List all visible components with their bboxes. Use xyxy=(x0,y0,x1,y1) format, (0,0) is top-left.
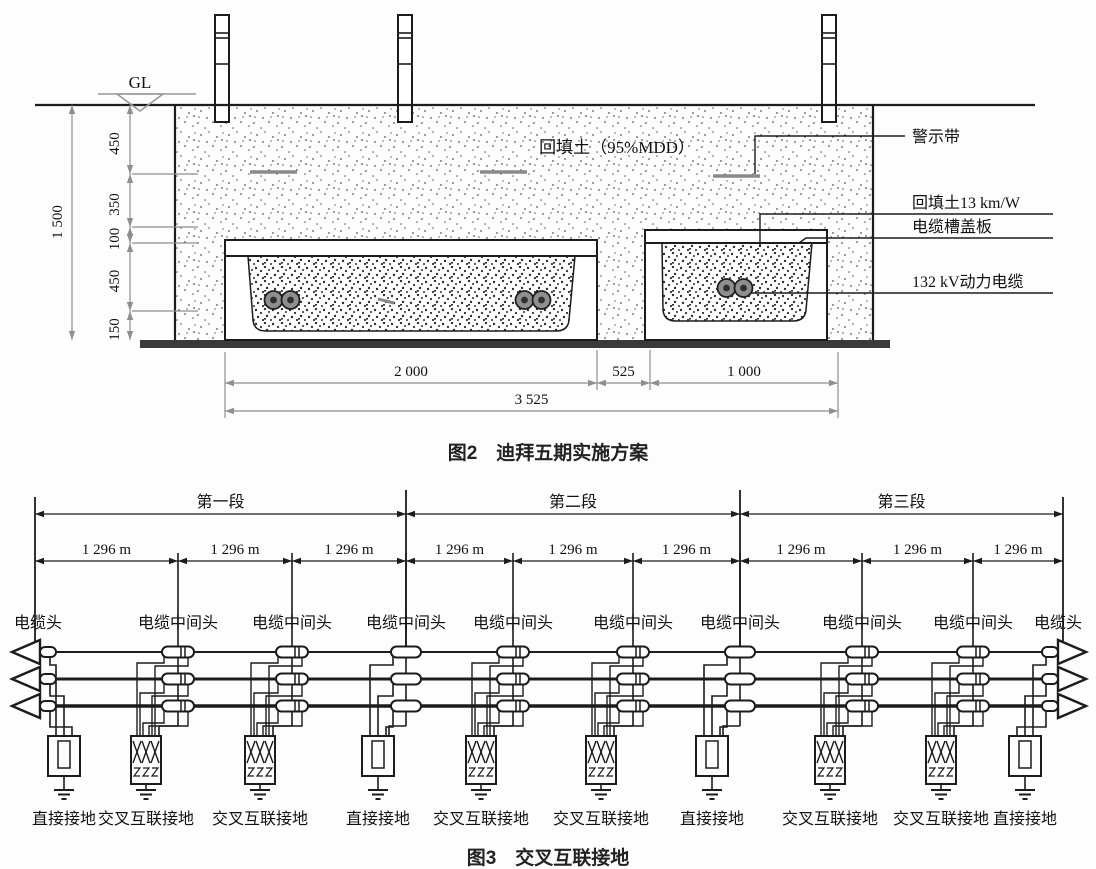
direct-ground-box-inner xyxy=(706,741,718,768)
cable-termination-arrow xyxy=(1058,694,1086,718)
dim-arrow xyxy=(283,558,292,564)
dim-arrow xyxy=(650,380,659,386)
cable-termination-arrow xyxy=(12,640,40,664)
gl-label: GL xyxy=(129,73,152,92)
callout-label: 132 kV动力电缆 xyxy=(912,273,1024,291)
dim-arrow xyxy=(829,380,838,386)
dim-arrow xyxy=(397,558,406,564)
link-zigzag xyxy=(589,768,595,776)
dim-arrow xyxy=(973,558,982,564)
dim-text: 1 296 m xyxy=(776,542,826,558)
dim-text: 1 500 xyxy=(50,205,66,239)
insulated-cable-joint xyxy=(276,647,308,658)
dim-text: 3 525 xyxy=(515,392,549,408)
link-zigzag xyxy=(929,768,935,776)
cable-core xyxy=(740,285,747,292)
cable-termination-arrow xyxy=(12,694,40,718)
node-label: 电缆中间头 xyxy=(473,614,553,632)
insulated-cable-joint xyxy=(846,647,878,658)
cable-joint xyxy=(391,674,421,685)
insulated-cable-joint xyxy=(276,674,308,685)
figure3-cross-bonding: 第一段第二段第三段1 296 m1 296 m1 296 m1 296 m1 2… xyxy=(12,490,1086,828)
insulated-cable-joint xyxy=(497,701,529,712)
dim-text: 2 000 xyxy=(394,364,428,380)
cable-core xyxy=(538,297,545,304)
dim-arrow xyxy=(641,380,650,386)
callout-label: 回填土13 km/W xyxy=(912,194,1021,212)
dim-text: 450 xyxy=(107,270,123,293)
dim-arrow xyxy=(406,511,415,517)
cross-bond-box xyxy=(466,736,496,784)
link-zigzag xyxy=(143,768,149,776)
joint-stem xyxy=(494,726,513,736)
link-zigzag xyxy=(836,768,842,776)
ground-type-label: 直接接地 xyxy=(346,810,410,828)
cable-core xyxy=(521,297,528,304)
foundation-strip xyxy=(140,340,890,348)
node-label: 电缆中间头 xyxy=(138,614,218,632)
cable-core xyxy=(287,297,294,304)
ground-type-label: 交叉互联接地 xyxy=(98,810,194,828)
ground-type-label: 直接接地 xyxy=(32,810,96,828)
dim-text: 1 296 m xyxy=(324,542,374,558)
insulated-cable-joint xyxy=(162,647,194,658)
dim-arrow xyxy=(127,331,133,340)
dim-arrow xyxy=(862,558,871,564)
section-label: 第一段 xyxy=(196,493,244,511)
node-label: 电缆头 xyxy=(1034,614,1082,632)
dim-arrow xyxy=(69,105,75,114)
direct-ground-box-inner xyxy=(58,741,70,768)
insulated-cable-joint xyxy=(957,701,989,712)
ground-type-label: 交叉互联接地 xyxy=(782,810,878,828)
dim-arrow xyxy=(513,558,522,564)
link-zigzag xyxy=(152,768,158,776)
dim-arrow xyxy=(127,218,133,227)
bond-wire xyxy=(143,711,164,736)
cable-joint xyxy=(725,647,755,658)
dim-arrow xyxy=(127,174,133,183)
joint-stem xyxy=(273,726,292,736)
link-zigzag xyxy=(487,768,493,776)
direct-ground-box xyxy=(696,736,728,776)
node-label: 电缆中间头 xyxy=(700,614,780,632)
termination-stub xyxy=(1042,701,1058,711)
dim-text: 1 296 m xyxy=(548,542,598,558)
ground-type-label: 交叉互联接地 xyxy=(212,810,308,828)
page: GL回填土（95%MDD）1 5004503501004501502 00052… xyxy=(0,0,1096,869)
ground-type-label: 交叉互联接地 xyxy=(433,810,529,828)
section-label: 第二段 xyxy=(549,493,597,511)
dim-arrow xyxy=(225,380,234,386)
dim-arrow xyxy=(624,558,633,564)
direct-ground-box-inner xyxy=(372,741,384,768)
termination-stub xyxy=(40,701,56,711)
joint-stem xyxy=(954,726,973,736)
dim-arrow xyxy=(35,558,44,564)
dim-arrow xyxy=(597,380,606,386)
insulated-cable-joint xyxy=(162,701,194,712)
termination-stub xyxy=(40,674,56,684)
joint-stem xyxy=(159,726,178,736)
direct-ground-box xyxy=(48,736,80,776)
callout-label: 警示带 xyxy=(912,128,960,146)
insulated-cable-joint xyxy=(846,701,878,712)
dim-arrow xyxy=(397,511,406,517)
dim-arrow xyxy=(35,511,44,517)
cable-joint xyxy=(725,674,755,685)
dim-arrow xyxy=(633,558,642,564)
node-label: 电缆中间头 xyxy=(933,614,1013,632)
ground-type-label: 交叉互联接地 xyxy=(893,810,989,828)
insulated-cable-joint xyxy=(617,647,649,658)
link-zigzag xyxy=(607,768,613,776)
dim-arrow xyxy=(829,408,838,414)
insulated-cable-joint xyxy=(617,701,649,712)
dim-arrow xyxy=(127,302,133,311)
termination-stub xyxy=(1042,647,1058,657)
bond-wire xyxy=(598,711,619,736)
joint-stem xyxy=(614,726,633,736)
ground-type-label: 直接接地 xyxy=(993,810,1057,828)
direct-ground-box-inner xyxy=(1019,741,1031,768)
dim-text: 1 296 m xyxy=(993,542,1043,558)
cable-termination-arrow xyxy=(1058,667,1086,691)
soil-label: 回填土（95%MDD） xyxy=(539,138,695,157)
node-label: 电缆中间头 xyxy=(252,614,332,632)
cross-bond-box xyxy=(131,736,161,784)
dim-text: 525 xyxy=(612,364,635,380)
bond-wire xyxy=(50,711,72,736)
bond-wire xyxy=(938,711,959,736)
dim-arrow xyxy=(169,558,178,564)
dim-arrow xyxy=(127,311,133,320)
technical-diagram: GL回填土（95%MDD）1 5004503501004501502 00052… xyxy=(0,0,1096,869)
cross-bond-box xyxy=(586,736,616,784)
dim-text: 150 xyxy=(107,318,123,341)
termination-stub xyxy=(40,647,56,657)
cable-termination-arrow xyxy=(12,667,40,691)
bond-wire xyxy=(257,711,278,736)
insulated-cable-joint xyxy=(957,674,989,685)
insulated-cable-joint xyxy=(957,647,989,658)
dim-arrow xyxy=(1054,558,1063,564)
cable-joint xyxy=(391,647,421,658)
bond-wire xyxy=(1017,711,1046,736)
insulated-cable-joint xyxy=(497,647,529,658)
link-zigzag xyxy=(134,768,140,776)
dim-arrow xyxy=(127,105,133,114)
node-label: 电缆头 xyxy=(14,614,62,632)
insulated-cable-joint xyxy=(276,701,308,712)
dim-arrow xyxy=(964,558,973,564)
direct-ground-box xyxy=(362,736,394,776)
figure2-caption: 图2 迪拜五期实施方案 xyxy=(0,438,1096,465)
bond-wire xyxy=(478,711,499,736)
cross-bond-box xyxy=(815,736,845,784)
joint-stem xyxy=(843,726,862,736)
link-zigzag xyxy=(248,768,254,776)
dim-text: 1 296 m xyxy=(435,542,485,558)
link-zigzag xyxy=(266,768,272,776)
node-label: 电缆中间头 xyxy=(366,614,446,632)
dim-arrow xyxy=(731,511,740,517)
cross-bond-box xyxy=(926,736,956,784)
insulated-cable-joint xyxy=(162,674,194,685)
termination-stub xyxy=(1042,674,1058,684)
dim-arrow xyxy=(178,558,187,564)
link-zigzag xyxy=(818,768,824,776)
direct-ground-box xyxy=(1009,736,1041,776)
dim-arrow xyxy=(588,380,597,386)
link-zigzag xyxy=(947,768,953,776)
dim-arrow xyxy=(127,243,133,252)
dim-text: 1 296 m xyxy=(893,542,943,558)
node-label: 电缆中间头 xyxy=(822,614,902,632)
cable-termination-arrow xyxy=(1058,640,1086,664)
bond-wire xyxy=(827,711,848,736)
cable-joint xyxy=(725,701,755,712)
dim-arrow xyxy=(127,234,133,243)
insulated-cable-joint xyxy=(497,674,529,685)
figure3-caption: 图3 交叉互联接地 xyxy=(0,843,1096,869)
dim-arrow xyxy=(740,511,749,517)
dim-text: 1 296 m xyxy=(662,542,712,558)
cable-core xyxy=(270,297,277,304)
dim-text: 1 296 m xyxy=(210,542,260,558)
dim-text: 1 296 m xyxy=(82,542,132,558)
dim-text: 350 xyxy=(107,193,123,216)
callout-label: 电缆槽盖板 xyxy=(912,218,992,236)
dim-arrow xyxy=(225,408,234,414)
cable-joint xyxy=(391,701,421,712)
dim-arrow xyxy=(731,558,740,564)
dim-arrow xyxy=(853,558,862,564)
ground-type-label: 直接接地 xyxy=(680,810,744,828)
insulated-cable-joint xyxy=(846,674,878,685)
node-label: 电缆中间头 xyxy=(593,614,673,632)
dim-arrow xyxy=(406,558,415,564)
gl-triangle xyxy=(117,94,163,111)
figure2-cross-section: GL回填土（95%MDD）1 5004503501004501502 00052… xyxy=(35,15,1053,418)
link-zigzag xyxy=(827,768,833,776)
dim-arrow xyxy=(740,558,749,564)
ground-type-label: 交叉互联接地 xyxy=(553,810,649,828)
dim-text: 1 000 xyxy=(727,364,761,380)
link-zigzag xyxy=(598,768,604,776)
dim-text: 100 xyxy=(107,228,123,251)
dim-arrow xyxy=(127,165,133,174)
cable-core xyxy=(723,285,730,292)
link-zigzag xyxy=(257,768,263,776)
section-label: 第三段 xyxy=(877,493,925,511)
link-zigzag xyxy=(478,768,484,776)
dim-arrow xyxy=(292,558,301,564)
dim-arrow xyxy=(504,558,513,564)
dim-text: 450 xyxy=(107,132,123,155)
link-zigzag xyxy=(938,768,944,776)
link-zigzag xyxy=(469,768,475,776)
dim-arrow xyxy=(1054,511,1063,517)
dim-arrow xyxy=(69,331,75,340)
cross-bond-box xyxy=(245,736,275,784)
insulated-cable-joint xyxy=(617,674,649,685)
